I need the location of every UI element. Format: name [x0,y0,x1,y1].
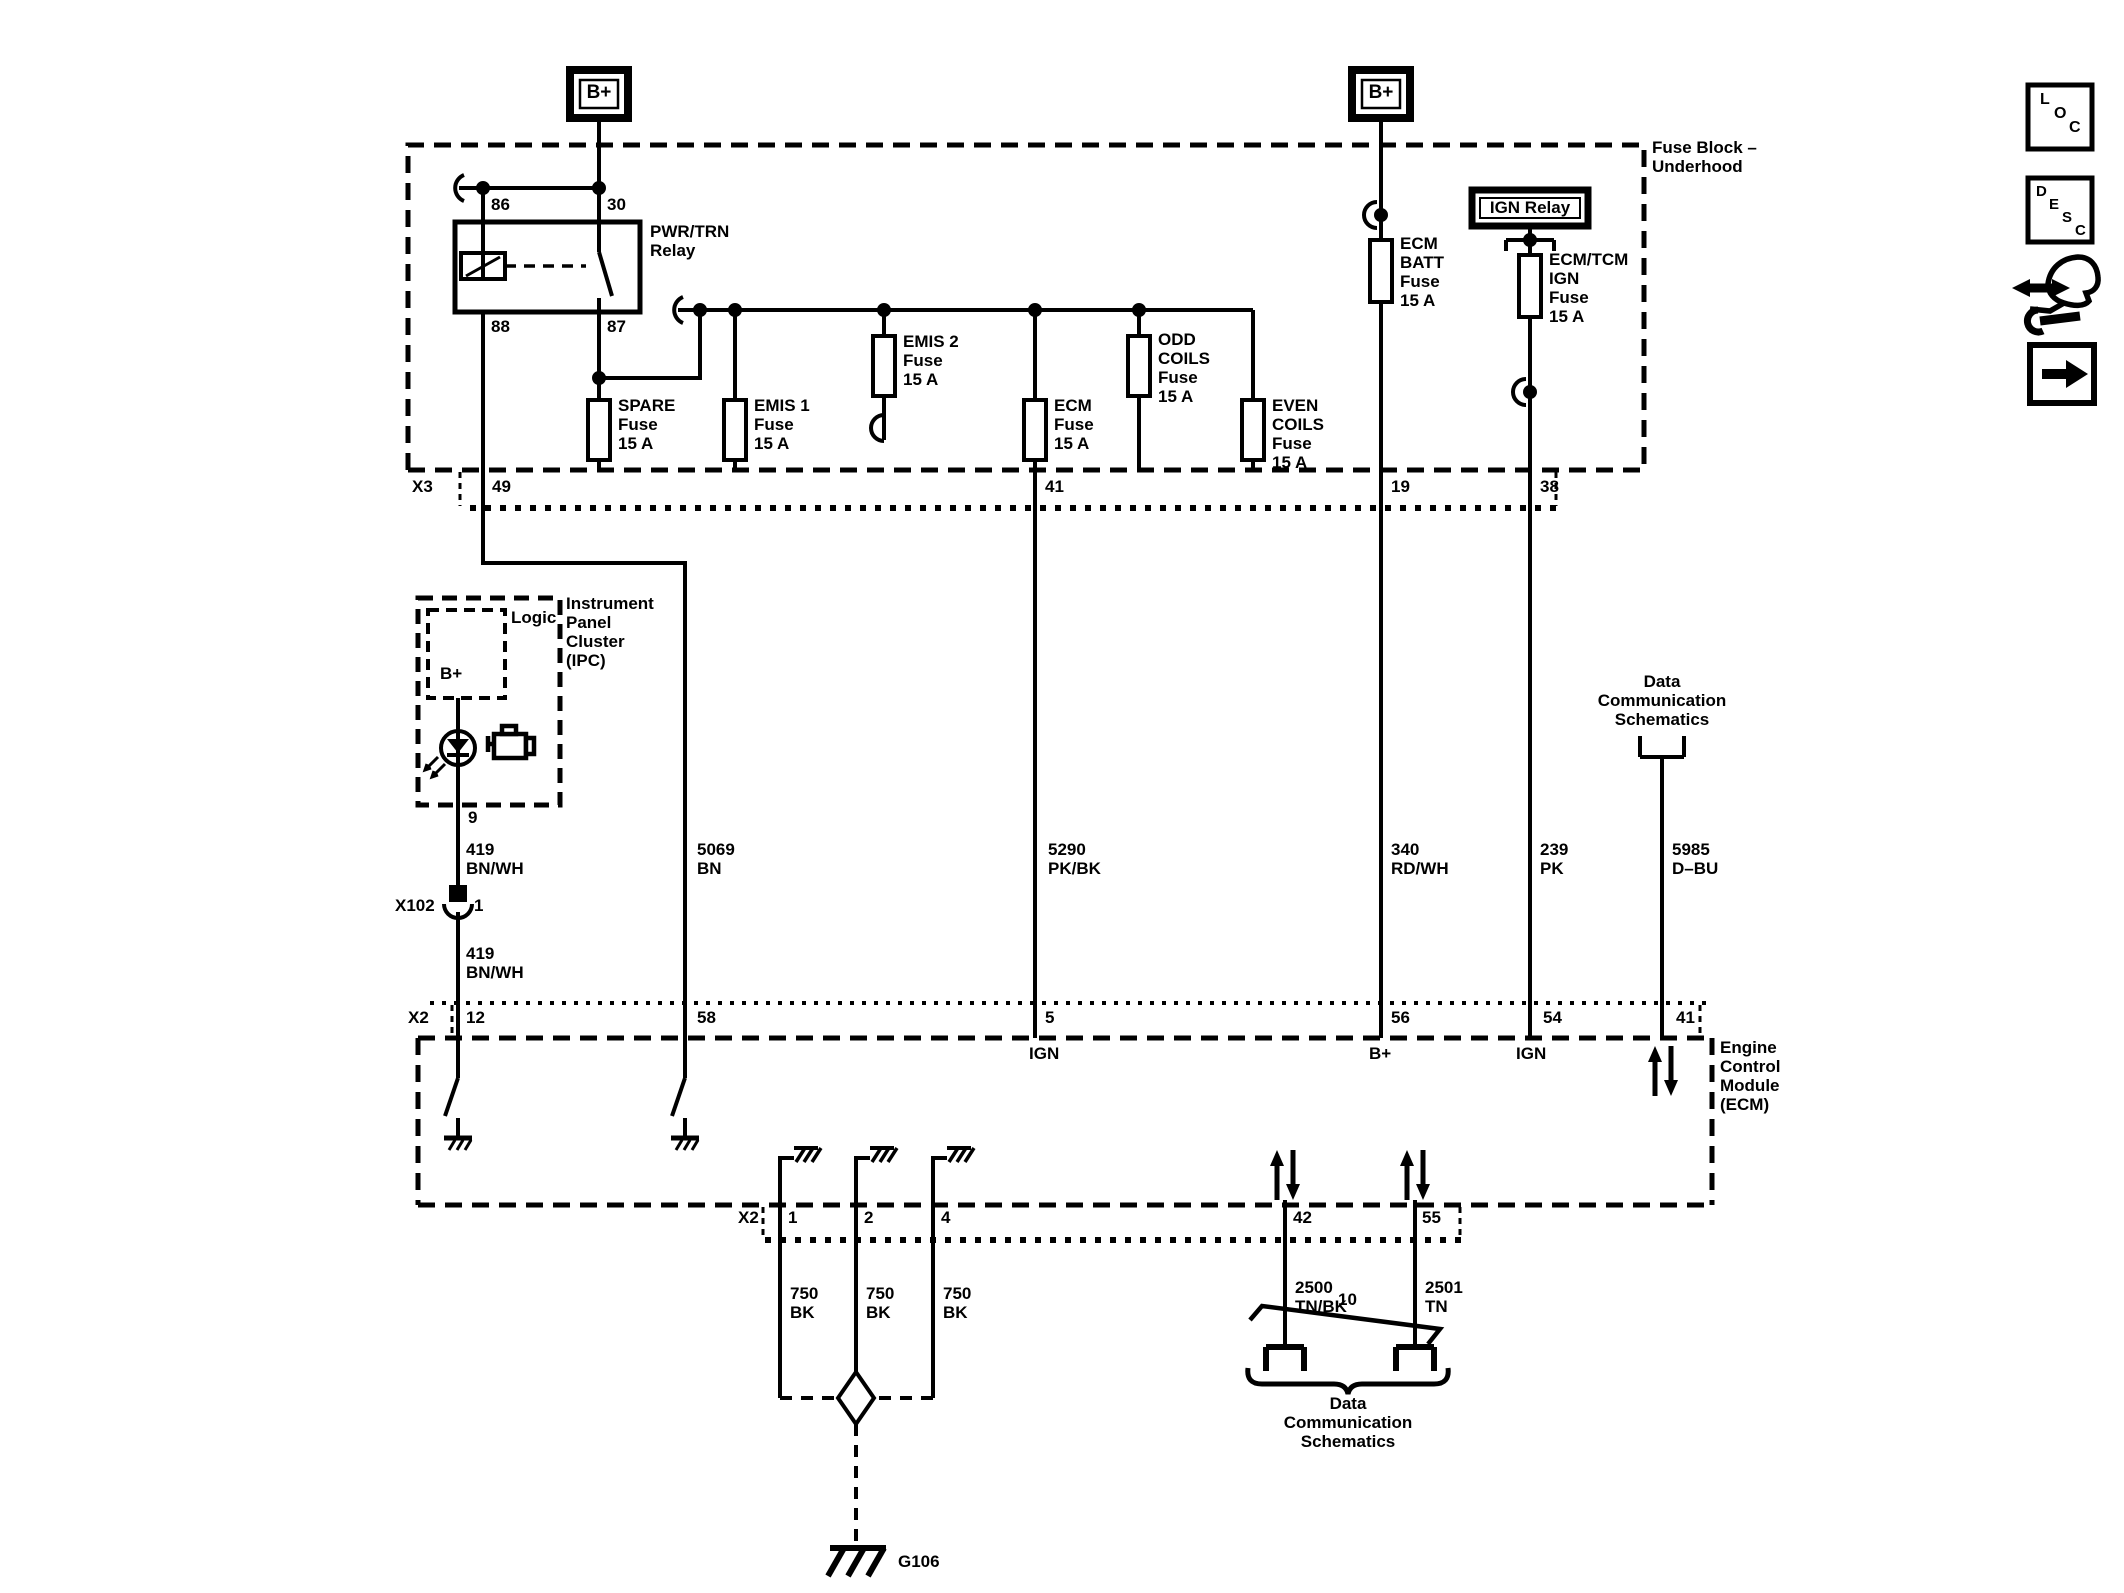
switch-blade [672,1078,685,1116]
ecm-fuse-label: ECM Fuse 15 A [1054,396,1094,453]
relay-pin-88: 88 [491,317,510,336]
offpage-connector-icon-55 [1396,1347,1434,1371]
x2-bottom-pin-42: 42 [1293,1208,1312,1227]
spare-fuse-label: SPARE Fuse 15 A [618,396,675,453]
wire-label-419-a: 419 BN/WH [466,840,524,878]
ipc-pin-9: 9 [468,808,477,827]
lamp-rays-icon [425,757,445,777]
desc-letter-s: S [2062,210,2072,225]
wire-label-419-b: 419 BN/WH [466,944,524,982]
relay-pin-30: 30 [607,195,626,214]
emis2-fuse-label: EMIS 2 Fuse 15 A [903,332,959,389]
ign-relay-label: IGN Relay [1490,198,1570,217]
g106-ground-icon [828,1548,886,1576]
x2-top-pin-54: 54 [1543,1008,1562,1027]
ipc-logic-box [428,610,505,698]
brace-icon [1248,1368,1448,1394]
x2-top-pin-12: 12 [466,1008,485,1027]
ecm-border [418,1038,1712,1205]
offpage-connector-icon-42 [1266,1347,1304,1371]
emis1-fuse-label: EMIS 1 Fuse 15 A [754,396,810,453]
splice-icon [838,1372,874,1424]
wire-label-239: 239 PK [1540,840,1568,878]
x2-top-pin-58: 58 [697,1008,716,1027]
data-comm-top-label: Data Communication Schematics [1598,672,1726,729]
emis2-fuse-icon [873,336,895,396]
ecm-batt-fuse-label: ECM BATT Fuse 15 A [1400,234,1444,310]
loc-letter-c: C [2069,120,2081,136]
loc-letter-l: L [2040,92,2050,108]
x2-bottom-pin-55: 55 [1422,1208,1441,1227]
relay-pin-86: 86 [491,195,510,214]
ecm-batt-fuse-icon [1370,240,1392,302]
b-plus-label-left: B+ [587,82,612,103]
wire-label-5069: 5069 BN [697,840,735,878]
x3-pin-38: 38 [1540,477,1559,496]
x3-pin-49: 49 [492,477,511,496]
desc-letter-d: D [2036,184,2047,199]
wire-label-750-2: 750 BK [866,1284,894,1322]
ecm-switch-ground-58 [671,1038,699,1150]
x102-pin-1: 1 [474,896,483,915]
even-coils-fuse-icon [1242,400,1264,460]
relay-pin-87: 87 [607,317,626,336]
spare-fuse-icon [588,400,610,460]
ecm-tcm-ign-fuse-label: ECM/TCM IGN Fuse 15 A [1549,250,1628,326]
ecm-ground-pin1 [780,1148,821,1205]
wrench-icon [2027,310,2080,332]
wire-label-5985: 5985 D–BU [1672,840,1718,878]
ipc-b-plus-label: B+ [440,664,462,683]
ecm-fuse-icon [1024,400,1046,460]
wire-label-750-3: 750 BK [943,1284,971,1322]
desc-letter-c: C [2075,223,2086,238]
b-plus-label-right: B+ [1369,82,1394,103]
data-arrows-pin42 [1270,1150,1300,1200]
even-coils-fuse-label: EVEN COILS Fuse 15 A [1272,396,1324,472]
ecm-fn-ign-54: IGN [1516,1044,1546,1063]
check-engine-icon [488,726,534,758]
ecm-ground-pin2 [856,1148,897,1205]
x2-bottom-pin-4: 4 [941,1208,950,1227]
forward-arrow-icon[interactable] [2030,345,2094,403]
desc-letter-e: E [2049,197,2059,212]
wiring-diagram: B+ B+ Fuse Block – Underhood 86 30 88 87… [0,0,2124,1593]
x3-label: X3 [412,477,433,496]
ground-wires-750bk [780,1200,933,1576]
ecm-switch-ground-12 [444,1038,472,1150]
twisted-pair-id: 10 [1338,1290,1357,1309]
data-comm-top-bracket [1640,736,1684,1038]
fuse-block-title: Fuse Block – Underhood [1652,138,1757,176]
odd-coils-fuse-icon [1128,336,1150,396]
ecm-fn-bplus-56: B+ [1369,1044,1391,1063]
x2-top-connector-row [430,1003,1706,1036]
x2-bottom-label: X2 [738,1208,759,1227]
x2-bottom-pin-1: 1 [788,1208,797,1227]
x3-pin-41: 41 [1045,477,1064,496]
ecm-ground-pin4 [933,1148,974,1205]
x2-top-pin-5: 5 [1045,1008,1054,1027]
ecm-tcm-ign-fuse-icon [1519,255,1541,317]
g106-label: G106 [898,1552,940,1571]
ipc-logic-label: Logic [511,608,556,627]
wire-label-2501: 2501 TN [1425,1278,1463,1316]
loc-letter-o: O [2054,106,2066,122]
wire-label-750-1: 750 BK [790,1284,818,1322]
ecm-fn-ign-5: IGN [1029,1044,1059,1063]
x2-top-pin-56: 56 [1391,1008,1410,1027]
switch-blade [445,1078,458,1116]
x102-label: X102 [395,896,435,915]
relay-coil-feed-link [455,175,604,222]
wire-label-340: 340 RD/WH [1391,840,1449,878]
relay-switch-blade [599,252,612,296]
data-comm-bottom-label: Data Communication Schematics [1284,1394,1412,1451]
x2-top-label: X2 [408,1008,429,1027]
ipc-title: Instrument Panel Cluster (IPC) [566,594,654,670]
x2-top-pin-41: 41 [1676,1008,1695,1027]
ecm-title: Engine Control Module (ECM) [1720,1038,1780,1114]
x2-bottom-pin-2: 2 [864,1208,873,1227]
x3-pin-19: 19 [1391,477,1410,496]
wire-239-pk [1513,255,1535,1038]
schematic-geometry [0,0,2124,1593]
odd-coils-fuse-label: ODD COILS Fuse 15 A [1158,330,1210,406]
emis1-fuse-icon [724,400,746,460]
wire-label-5290: 5290 PK/BK [1048,840,1101,878]
pwr-trn-relay-label: PWR/TRN Relay [650,222,729,260]
vehicle-diagnostic-icon[interactable] [2012,257,2098,332]
data-arrows-x2-41 [1648,1046,1678,1096]
data-arrows-pin55 [1400,1150,1430,1200]
pwr-trn-relay-symbol [455,222,640,312]
